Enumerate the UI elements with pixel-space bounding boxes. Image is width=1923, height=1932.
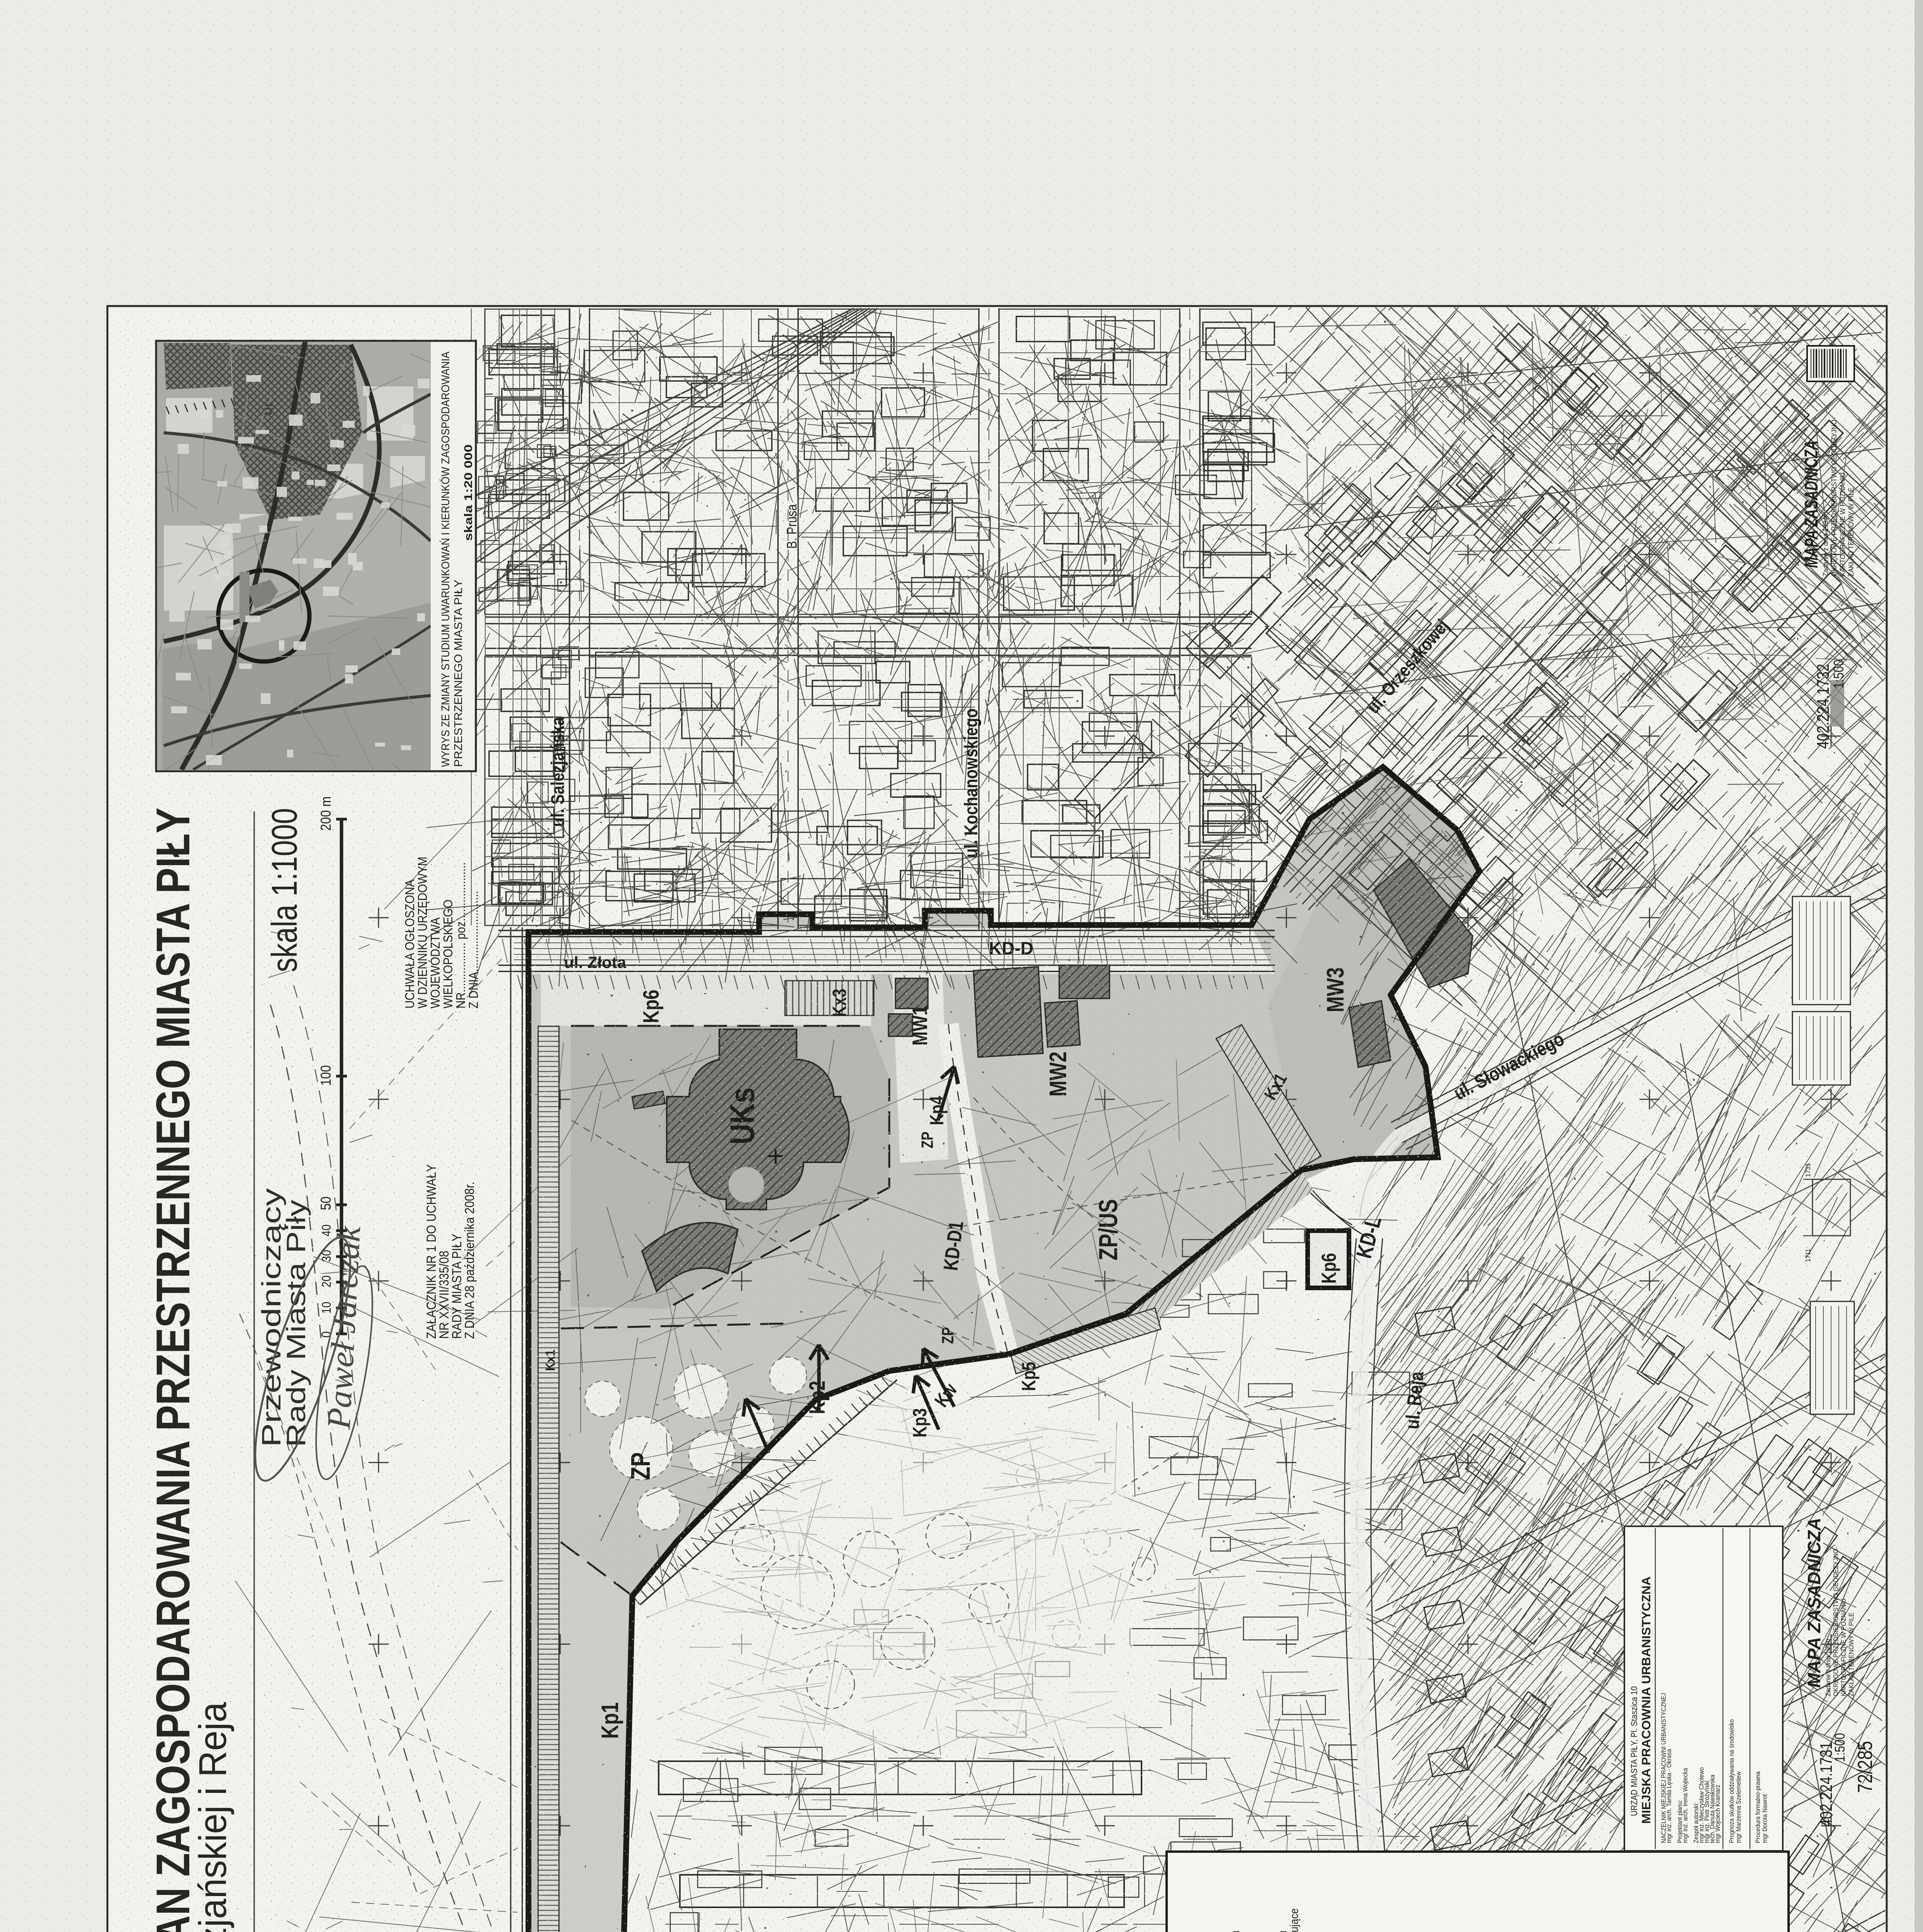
svg-text:OKRĘGOWE PRZEDSIĘBIORSTWO GEOD: OKRĘGOWE PRZEDSIĘBIORSTWO GEODEZYJNO- [1830,417,1838,577]
svg-text:1731: 1731 [1804,1163,1812,1177]
svg-text:100: 100 [318,1065,334,1086]
svg-text:mgr inż. arch. Irena Wojtecka: mgr inż. arch. Irena Wojtecka [1682,1768,1689,1843]
svg-text:mgr Marzenna Szelemetiew: mgr Marzenna Szelemetiew [1735,1771,1742,1843]
svg-text:50: 50 [318,1196,334,1210]
svg-text:MIEJSKA PRACOWNIA URBANISTYCZN: MIEJSKA PRACOWNIA URBANISTYCZNA [1640,1577,1653,1824]
svg-text:Z DNIA 28 października 2008r.: Z DNIA 28 października 2008r. [462,1182,477,1339]
svg-text:ZAKŁAD TERENOWY W PILE: ZAKŁAD TERENOWY W PILE [1847,1612,1855,1696]
svg-text:lub różnych zasadach zagospoda: lub różnych zasadach zagospodarowania ni… [1288,1908,1300,1932]
svg-text:1:500: 1:500 [1831,660,1847,689]
svg-text:mgr Dorota Nawrot: mgr Dorota Nawrot [1762,1794,1768,1843]
svg-text:UCHWAŁA OGŁOSZONA: UCHWAŁA OGŁOSZONA [403,879,417,1009]
svg-text:Zadanie z dnia 1994r: Zadanie z dnia 1994r [1821,515,1830,577]
svg-text:w rejonie ulic Salezjańskiej i: w rejonie ulic Salezjańskiej i Reja [192,1702,235,1932]
svg-text:MAPA ZASADNICZA: MAPA ZASADNICZA [1804,1518,1824,1688]
svg-text:200 m: 200 m [318,796,334,831]
svg-text:linie rozgraniczające tereny o: linie rozgraniczające tereny o różnym pr… [1229,1930,1242,1932]
svg-text:skala 1:1000: skala 1:1000 [264,808,304,972]
svg-text:KARTOGRAFICZNE W POZNANIU: KARTOGRAFICZNE W POZNANIU [1838,473,1847,577]
svg-text:Zadanie z dnia 1994r: Zadanie z dnia 1994r [1824,1638,1832,1696]
svg-text:W DZIENNIKU URZĘDOWYM: W DZIENNIKU URZĘDOWYM [415,857,430,1009]
svg-text:WIELKOPOLSKIEGO: WIELKOPOLSKIEGO [441,900,455,1009]
svg-text:WYRYS ZE ZMIANY STUDIUM UWARUN: WYRYS ZE ZMIANY STUDIUM UWARUNKOWAŃ I KI… [439,351,452,767]
svg-text:Z DNIA........................: Z DNIA.......................... [466,891,481,1009]
svg-text:skala 1:20 000: skala 1:20 000 [462,444,474,541]
svg-text:Ut: Ut [262,403,275,415]
svg-text:402.224.1732: 402.224.1732 [1814,664,1833,749]
svg-text:1711: 1711 [1804,1249,1812,1262]
svg-text:OKRĘGOWE PRZEDSIĘBIORSTWO GEOD: OKRĘGOWE PRZEDSIĘBIORSTWO GEODEZYJNO- [1832,1547,1840,1696]
svg-text:mgr Wojciech Kramarz: mgr Wojciech Kramarz [1714,1785,1721,1843]
svg-text:72/285: 72/285 [1854,1741,1877,1793]
svg-text:URZĄD MIASTA PIŁY, Pl. Staszi: URZĄD MIASTA PIŁY, Pl. Staszica 10 [1629,1686,1639,1816]
svg-text:mgr inż. arch. Tamila Lęska -: mgr inż. arch. Tamila Lęska - Okrasa [1666,1749,1673,1843]
svg-text:WOJEWÓDZTWA: WOJEWÓDZTWA [428,917,442,1009]
svg-text:Procedura formalno-prawna: Procedura formalno-prawna [1755,1771,1762,1843]
svg-text:PRZESTRZENNEGO MIASTA PIŁY: PRZESTRZENNEGO MIASTA PIŁY [452,580,464,767]
svg-text:MAPA ZASADNICZA: MAPA ZASADNICZA [1801,440,1821,568]
svg-text:KARTOGRAFICZNE W POZNANIU: KARTOGRAFICZNE W POZNANIU [1840,1599,1847,1696]
svg-text:NR................ poz.......: NR................ poz..................… [454,862,468,1009]
svg-text:linie rozgraniczające tereny o: linie rozgraniczające tereny o różnym pr… [1276,1930,1289,1932]
svg-text:ZAKŁAD TERENOWY W PILE: ZAKŁAD TERENOWY W PILE [1847,487,1855,577]
svg-text:1:500: 1:500 [1832,1733,1848,1762]
svg-text:Prognoza skutków oddziaływania: Prognoza skutków oddziaływania na środow… [1728,1719,1735,1843]
